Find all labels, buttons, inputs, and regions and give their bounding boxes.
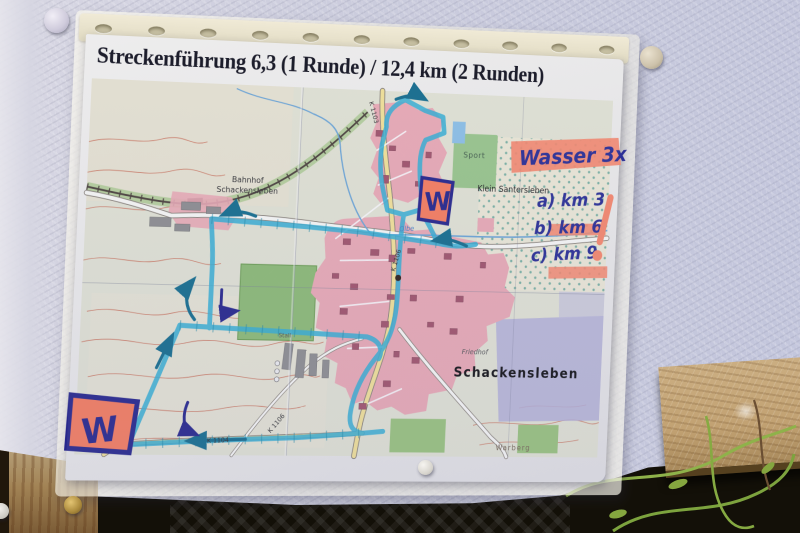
building: [340, 308, 348, 314]
barn: [322, 360, 329, 378]
building: [383, 381, 391, 387]
route-map-page: Streckenführung 6,3 (1 Runde) / 12,4 km …: [65, 34, 624, 482]
sleeve-hole: [353, 34, 369, 43]
annotation-km9: c) km 9: [531, 243, 598, 267]
building: [427, 322, 434, 327]
silo: [274, 377, 279, 382]
course-map: W W Bahnhof Schackensleben Sport Klein S…: [74, 78, 613, 457]
building: [352, 343, 359, 349]
sleeve-hole: [403, 37, 419, 46]
silo: [275, 369, 280, 374]
sleeve-hole: [148, 26, 165, 36]
pushpin-top-right: [640, 46, 663, 69]
label-olbe: Olbe: [399, 224, 414, 234]
pond: [452, 121, 466, 143]
sleeve-hole: [551, 43, 567, 52]
building-gray: [181, 202, 201, 211]
annotation-km6: b) km 6: [534, 217, 603, 239]
sleeve-hole: [303, 32, 320, 41]
barn: [309, 354, 318, 376]
twig: [754, 400, 770, 490]
leaf: [667, 477, 689, 491]
building: [410, 295, 417, 301]
annotation-km3: a) km 3: [537, 190, 605, 212]
building: [389, 146, 396, 151]
sleeve-hole: [599, 45, 615, 54]
label-schackensleben: Schackensleben: [453, 365, 579, 382]
building: [456, 296, 464, 302]
vine-stem: [706, 416, 754, 528]
water-mark-letter: W: [80, 409, 119, 453]
label-sport: Sport: [463, 150, 485, 160]
building: [370, 249, 379, 255]
label-bahnhof: Bahnhof: [232, 175, 264, 185]
wall-left-highlight: [0, 0, 50, 470]
building: [444, 253, 452, 259]
building: [332, 273, 339, 278]
building: [359, 403, 367, 409]
sleeve-hole: [95, 23, 112, 33]
sleeve-hole: [251, 30, 268, 40]
water-station-marker-southwest: W: [66, 395, 137, 454]
water-station-marker-north: W: [418, 178, 453, 224]
sleeve-hole: [502, 41, 518, 50]
building-gray: [149, 217, 171, 227]
building: [387, 294, 395, 299]
label-warberg: Warberg: [495, 443, 530, 452]
building-gray: [174, 224, 190, 232]
label-friedhof: Friedhof: [462, 347, 490, 356]
building-gray: [206, 207, 221, 214]
building: [381, 321, 389, 327]
annotation-wasser: Wasser 3x: [519, 142, 628, 170]
building: [402, 161, 410, 167]
leaf: [608, 508, 627, 520]
building: [412, 357, 420, 363]
building: [408, 248, 416, 253]
green-patch: [389, 419, 446, 453]
water-mark-letter: W: [424, 187, 451, 218]
building: [426, 152, 432, 158]
building: [480, 262, 486, 268]
silo: [275, 361, 280, 366]
pushpin-bottom-center: [418, 460, 433, 475]
building: [343, 239, 351, 245]
sleeve-hole: [453, 39, 469, 48]
pushpin-top-left: [44, 8, 69, 33]
pushpin-brass-bottom-left: [64, 496, 82, 514]
hamlet-area: [477, 218, 494, 232]
sleeve-hole: [200, 28, 217, 38]
photo-scene: Streckenführung 6,3 (1 Runde) / 12,4 km …: [0, 0, 800, 533]
highlight-stripe: [548, 266, 607, 278]
label-k1104: K 1104: [207, 436, 229, 445]
building: [450, 328, 458, 334]
building: [394, 351, 400, 357]
label-stall: Stall: [278, 332, 291, 339]
